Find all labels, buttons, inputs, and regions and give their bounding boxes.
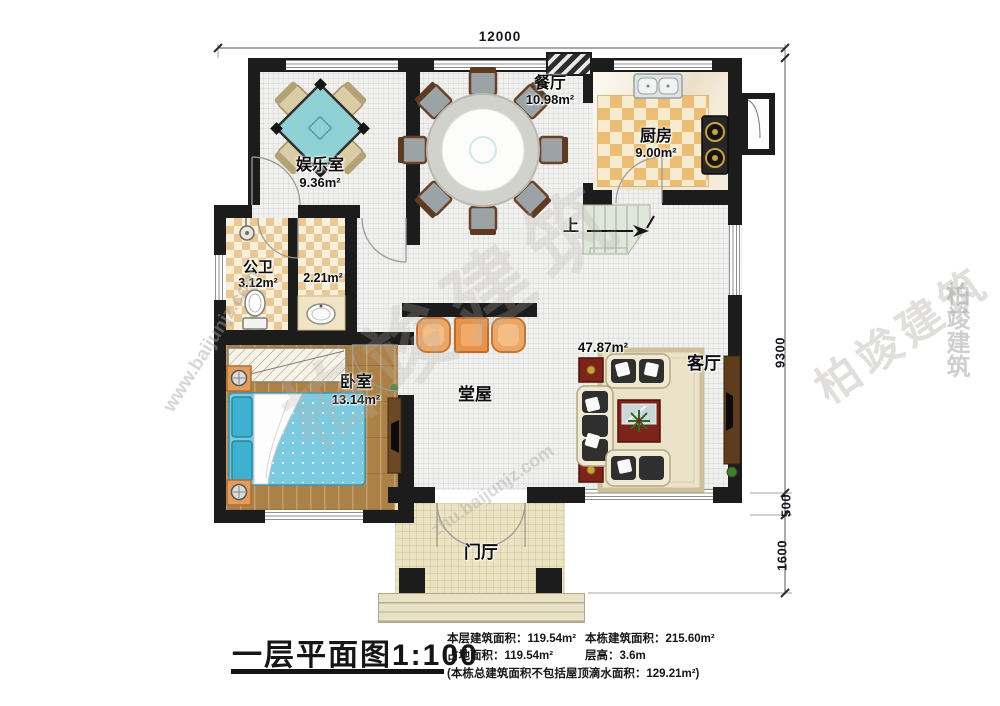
wall-bath-bottom xyxy=(214,330,357,345)
floor-bedroom-wood xyxy=(226,345,398,510)
wall-left-upper xyxy=(248,58,260,205)
window-kitchen xyxy=(614,60,712,70)
watermark-brand-right: 柏竣建筑 xyxy=(800,248,1000,415)
plan-title-text: 一层平面图 xyxy=(232,639,392,672)
stat-floor-area: 本层建筑面积：119.54m² xyxy=(447,630,576,646)
room-label-bathroom: 公卫 xyxy=(226,260,290,277)
wall-hall-top xyxy=(402,303,537,317)
room-label-hall: 堂屋 xyxy=(443,386,507,405)
room-label-dining: 餐厅 xyxy=(506,75,594,93)
wall-segment xyxy=(406,205,420,245)
wall-kitchen-bottom xyxy=(583,190,612,205)
room-label-entertainment: 娱乐室 xyxy=(262,157,378,175)
dimension-right-500: 500 xyxy=(779,478,794,534)
room-area-bathroom: 3.12m² xyxy=(222,277,294,291)
stairs-up-label: 上 xyxy=(560,218,582,236)
floor-washroom-counter-area xyxy=(298,295,345,330)
wall-foyer-top xyxy=(388,487,435,503)
dimension-top: 12000 xyxy=(455,29,545,44)
wall-bedroom-right xyxy=(398,332,414,345)
window-bedroom xyxy=(265,512,363,522)
dimension-right-9300: 9300 xyxy=(773,325,788,381)
room-area-entertainment: 9.36m² xyxy=(262,176,378,190)
title-underline xyxy=(231,669,444,674)
wall-left-lower xyxy=(214,300,226,523)
wall-right-mid xyxy=(728,295,742,330)
room-area-living: 47.87m² xyxy=(567,341,639,356)
wall-right-upper xyxy=(728,58,742,205)
flue-hatched xyxy=(546,52,592,76)
flue-right xyxy=(742,93,775,155)
room-area-washroom: 2.21m² xyxy=(294,272,352,286)
wall-right-mid xyxy=(728,205,742,225)
wall-bedroom-right xyxy=(398,395,414,523)
room-area-bedroom: 13.14m² xyxy=(312,393,400,407)
window-dining xyxy=(434,60,560,70)
room-area-dining: 10.98m² xyxy=(503,93,597,107)
stat-note: (本栋总建筑面积不包括屋顶滴水面积：129.21m²) xyxy=(447,665,699,681)
plan-title: 一层平面图1:100 xyxy=(232,630,479,674)
window-entertainment xyxy=(286,60,398,70)
watermark-brand-edge: 柏竣建筑 xyxy=(938,282,973,378)
stat-floor-height: 层高：3.6m xyxy=(585,647,646,663)
room-label-living: 客厅 xyxy=(669,355,739,374)
porch-steps xyxy=(378,593,585,623)
room-label-foyer: 门厅 xyxy=(448,544,514,563)
room-label-kitchen: 厨房 xyxy=(612,128,700,146)
wall-left-lower xyxy=(214,205,226,255)
porch-column xyxy=(399,568,425,593)
window-hall-right xyxy=(729,225,741,295)
room-label-bedroom: 卧室 xyxy=(312,374,400,392)
wall-bedroom-top xyxy=(345,332,406,345)
room-area-kitchen: 9.00m² xyxy=(612,146,700,160)
floor-plan-canvas: 娱乐室 9.36m² 餐厅 10.98m² 厨房 9.00m² 公卫 3.12m… xyxy=(0,0,1000,706)
dimension-right-1600: 1600 xyxy=(775,528,790,584)
window-living xyxy=(585,489,713,501)
wall-foyer-top xyxy=(527,487,583,503)
wall-bedroom-bottom xyxy=(214,510,265,523)
porch-column xyxy=(536,568,562,593)
wall-living-bottom xyxy=(713,487,742,503)
stat-building-area: 本栋建筑面积：215.60m² xyxy=(585,630,715,646)
wall-divider-ent-dining xyxy=(406,58,420,205)
stat-ground-area: 占地面积：119.54m² xyxy=(447,647,553,663)
